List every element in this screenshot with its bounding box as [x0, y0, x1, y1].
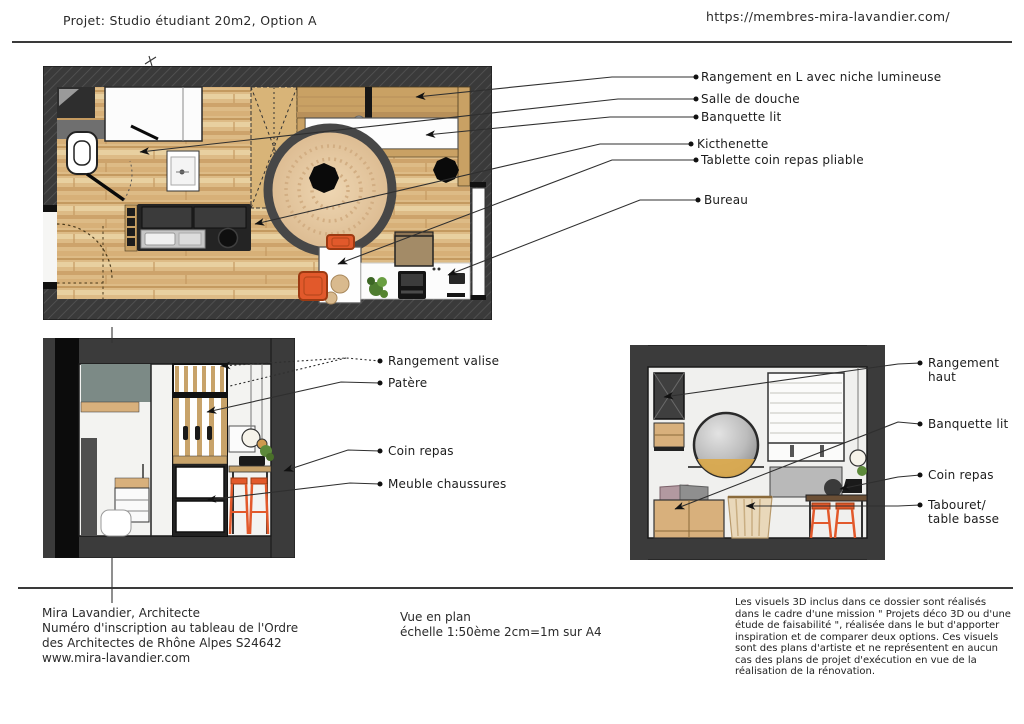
left-label-meuble-chaussures: Meuble chaussures	[388, 477, 506, 491]
plan-label-rangement-l: Rangement en L avec niche lumineuse	[701, 70, 941, 84]
left-label-coin-repas: Coin repas	[388, 444, 454, 458]
cooktop	[219, 229, 238, 248]
plan-label-banquette-lit: Banquette lit	[701, 110, 781, 124]
header-divider	[12, 41, 1012, 43]
plan-label-tablette: Tablette coin repas pliable	[701, 153, 864, 167]
toilet	[67, 132, 97, 174]
desk-chair-back	[824, 479, 842, 497]
right-elevation-window	[768, 373, 844, 497]
plant	[857, 466, 867, 476]
toilet-side	[101, 510, 131, 536]
website-url: https://membres-mira-lavandier.com/	[706, 9, 950, 24]
right-elevation-basket-table	[728, 497, 772, 538]
washbasin	[167, 151, 199, 191]
disclaimer-text: Les visuels 3D inclus dans ce dossier so…	[735, 597, 1013, 678]
desk-chair	[395, 236, 433, 266]
footer-divider	[18, 587, 1013, 589]
view-title: Vue en plan	[400, 610, 602, 625]
architect-order-1: Numéro d'inscription au tableau de l'Ord…	[42, 621, 298, 636]
architect-info: Mira Lavandier, Architecte Numéro d'insc…	[42, 606, 298, 666]
right-label-rangement-haut: Rangement haut	[928, 356, 1020, 384]
plan-label-salle-de-douche: Salle de douche	[701, 92, 800, 106]
left-elevation-view	[43, 338, 295, 558]
left-label-rangement-valise: Rangement valise	[388, 354, 499, 368]
pendant-light	[850, 450, 866, 466]
architect-website: www.mira-lavandier.com	[42, 651, 298, 666]
project-title: Projet: Studio étudiant 20m2, Option A	[63, 13, 317, 28]
left-label-patere: Patère	[388, 376, 427, 390]
table-top	[229, 466, 271, 472]
right-label-coin-repas: Coin repas	[928, 468, 994, 482]
coat-hook	[207, 426, 212, 440]
architect-name: Mira Lavandier, Architecte	[42, 606, 298, 621]
view-scale: échelle 1:50ème 2cm=1m sur A4	[400, 625, 602, 640]
shoe-drawer	[176, 501, 224, 532]
shoe-drawer	[176, 467, 224, 498]
document-page: Projet: Studio étudiant 20m2, Option A h…	[0, 0, 1024, 724]
architect-order-2: des Architectes de Rhône Alpes S24642	[42, 636, 298, 651]
plan-label-kitchenette: Kicthenette	[697, 137, 768, 151]
plan-window	[470, 182, 486, 300]
floor-plan-view	[43, 66, 492, 320]
right-elevation-storage	[654, 373, 684, 451]
plan-rug	[268, 128, 392, 252]
coat-hook	[195, 426, 200, 440]
coat-hook	[183, 426, 188, 440]
right-label-banquette-lit: Banquette lit	[928, 417, 1008, 431]
shower	[105, 87, 202, 141]
right-label-tabouret: Tabouret/ table basse	[928, 498, 1020, 526]
plan-label-bureau: Bureau	[704, 193, 748, 207]
right-elevation-view	[630, 345, 885, 560]
left-elevation-wardrobe	[173, 364, 227, 536]
view-info: Vue en plan échelle 1:50ème 2cm=1m sur A…	[400, 610, 602, 640]
plan-kitchenette	[125, 204, 251, 251]
